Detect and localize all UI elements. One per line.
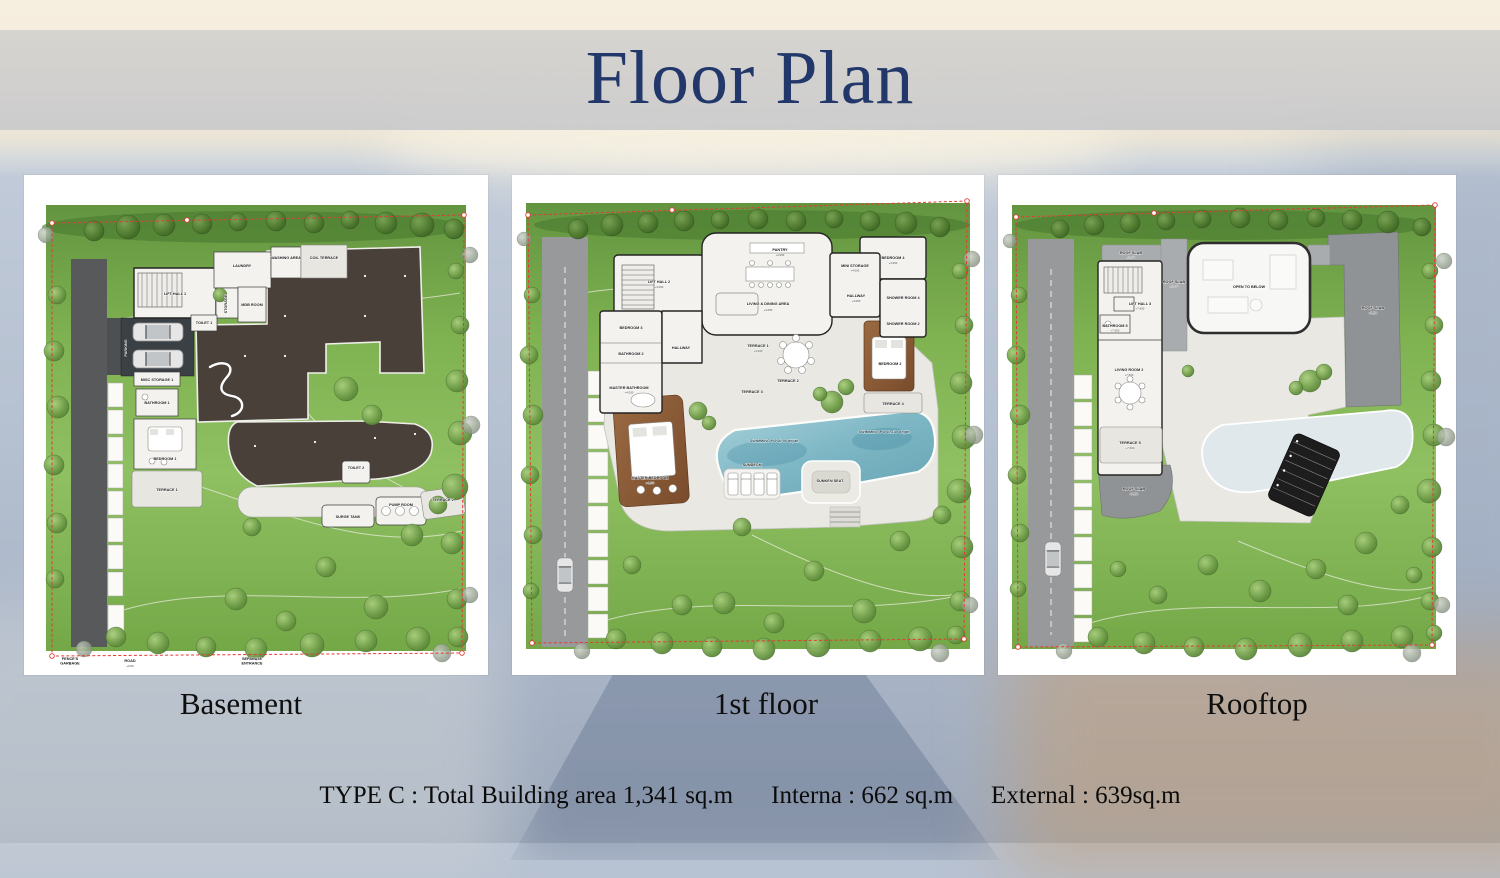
svg-text:LIFT HALL 3: LIFT HALL 3 — [1129, 302, 1151, 306]
svg-text:TERRACE 2: TERRACE 2 — [777, 379, 799, 383]
svg-text:SURGE TANK: SURGE TANK — [336, 515, 361, 519]
svg-text:MASTER BEDROOM: MASTER BEDROOM — [632, 476, 669, 480]
svg-text:ROOF SLAB: ROOF SLAB — [1362, 306, 1385, 310]
caption-basement: Basement — [180, 686, 302, 722]
svg-text:+4.050: +4.050 — [646, 481, 655, 485]
first-floor-panel: LIFT HALL 2 +4.050 PANTRY +4.050 MINI ST… — [512, 175, 984, 675]
caption-rooftop: Rooftop — [1206, 686, 1308, 722]
footer-internal-area: Interna : 662 sq.m — [771, 782, 953, 810]
svg-text:BEDROOM 1: BEDROOM 1 — [154, 457, 177, 461]
footer-type-area: TYPE C : Total Building area 1,341 sq.m — [319, 782, 733, 810]
svg-text:TERRACE 1: TERRACE 1 — [156, 488, 178, 492]
svg-text:+7.550: +7.550 — [1170, 285, 1179, 289]
svg-text:BATHROOM 2: BATHROOM 2 — [618, 352, 643, 356]
svg-text:TOILET 1: TOILET 1 — [196, 321, 213, 325]
svg-text:ROOF SLAB: ROOF SLAB — [1120, 251, 1143, 255]
svg-text:+4.050: +4.050 — [655, 285, 664, 289]
building-area-summary: TYPE C : Total Building area 1,341 sq.m … — [0, 782, 1500, 810]
svg-text:+4.050: +4.050 — [852, 299, 861, 303]
svg-text:+7.550: +7.550 — [1130, 492, 1139, 496]
svg-text:BEDROOM 4: BEDROOM 4 — [882, 256, 906, 260]
svg-text:SUNKEN SEAT: SUNKEN SEAT — [817, 479, 845, 483]
svg-text:BATHROOM 1: BATHROOM 1 — [144, 401, 169, 405]
svg-text:+7.600: +7.600 — [1125, 373, 1134, 377]
svg-text:PUMP ROOM: PUMP ROOM — [389, 503, 413, 507]
page-title: Floor Plan — [0, 28, 1500, 128]
svg-text:BEDROOM 2: BEDROOM 2 — [879, 362, 902, 366]
svg-text:+4.050: +4.050 — [625, 391, 634, 395]
rooftop-plan: ROOF SLAB +7.550 ROOF SLAB +7.550 ROOF S… — [998, 175, 1456, 675]
car — [557, 558, 573, 592]
svg-text:SUNDECK: SUNDECK — [743, 463, 762, 467]
footer-external-area: External : 639sq.m — [991, 782, 1181, 810]
svg-text:SEPARATE: SEPARATE — [242, 657, 263, 661]
svg-text:SHOWER ROOM 2: SHOWER ROOM 2 — [886, 322, 919, 326]
basement-floor-plan: LAUNDRY WASHING AREA COIL TERRACE LIFT H… — [24, 175, 488, 675]
svg-text:COIL TERRACE: COIL TERRACE — [310, 256, 339, 260]
basement-panel: LAUNDRY WASHING AREA COIL TERRACE LIFT H… — [24, 175, 488, 675]
svg-text:WASHING AREA: WASHING AREA — [271, 256, 301, 260]
svg-text:MASTER BATHROOM: MASTER BATHROOM — [609, 386, 648, 390]
first-floor-plan: LIFT HALL 2 +4.050 PANTRY +4.050 MINI ST… — [512, 175, 984, 675]
svg-text:GARBAGE: GARBAGE — [60, 662, 80, 666]
car — [133, 350, 183, 368]
svg-text:TERRACE 2: TERRACE 2 — [432, 498, 454, 502]
svg-text:STORAGE: STORAGE — [224, 294, 228, 313]
svg-text:ROAD: ROAD — [124, 659, 135, 663]
first-building — [600, 233, 938, 531]
svg-text:BEDROOM 3: BEDROOM 3 — [620, 326, 643, 330]
svg-text:ROOF SLAB: ROOF SLAB — [1123, 487, 1146, 491]
caption-first-floor: 1st floor — [714, 686, 818, 722]
svg-text:+7.600: +7.600 — [1111, 329, 1120, 333]
car — [1045, 542, 1061, 576]
svg-text:+7.550: +7.550 — [1369, 311, 1378, 315]
svg-text:LAUNDRY: LAUNDRY — [233, 264, 252, 268]
car — [133, 323, 183, 341]
svg-text:MISC STORAGE 1: MISC STORAGE 1 — [141, 378, 173, 382]
svg-text:+4.050: +4.050 — [889, 261, 898, 265]
svg-text:HALLWAY: HALLWAY — [847, 294, 866, 298]
svg-text:SWIMMING POOL 140 depth: SWIMMING POOL 140 depth — [859, 430, 910, 434]
svg-text:BATHROOM 5: BATHROOM 5 — [1102, 324, 1127, 328]
svg-text:TERRACE 5: TERRACE 5 — [1119, 441, 1141, 445]
svg-text:LIFT HALL 1: LIFT HALL 1 — [164, 292, 186, 296]
svg-text:TERRACE 4: TERRACE 4 — [882, 402, 904, 406]
svg-text:+7.550: +7.550 — [1127, 256, 1136, 260]
rooftop-panel: ROOF SLAB +7.550 ROOF SLAB +7.550 ROOF S… — [998, 175, 1456, 675]
svg-text:MDB ROOM: MDB ROOM — [241, 303, 263, 307]
svg-text:+4.050: +4.050 — [764, 308, 773, 312]
svg-text:+0.00: +0.00 — [126, 664, 134, 668]
svg-text:SWIMMING POOL 90 depth: SWIMMING POOL 90 depth — [750, 439, 799, 443]
svg-text:LIVING & DINING AREA: LIVING & DINING AREA — [747, 302, 790, 306]
svg-text:PARKING: PARKING — [124, 339, 128, 356]
svg-text:LIVING ROOM 2: LIVING ROOM 2 — [1115, 368, 1144, 372]
svg-text:MINI STORAGE: MINI STORAGE — [841, 264, 869, 268]
svg-text:FENCE'S: FENCE'S — [62, 657, 79, 661]
svg-text:PANTRY: PANTRY — [772, 248, 788, 252]
svg-text:TERRACE 3: TERRACE 3 — [741, 390, 763, 394]
svg-text:TERRACE 1: TERRACE 1 — [747, 344, 769, 348]
svg-text:ROOF SLAB: ROOF SLAB — [1163, 280, 1186, 284]
svg-text:ENTRANCE: ENTRANCE — [241, 662, 263, 666]
svg-text:HALLWAY: HALLWAY — [672, 346, 691, 350]
svg-text:+4.050: +4.050 — [776, 253, 785, 257]
svg-text:+7.600: +7.600 — [1126, 446, 1135, 450]
svg-text:+4.000: +4.000 — [754, 349, 763, 353]
svg-text:TOILET 2: TOILET 2 — [348, 466, 365, 470]
svg-text:LIFT HALL 2: LIFT HALL 2 — [648, 280, 670, 284]
svg-text:+7.600: +7.600 — [1136, 307, 1145, 311]
svg-text:SHOWER ROOM 4: SHOWER ROOM 4 — [886, 296, 920, 300]
svg-text:OPEN TO BELOW: OPEN TO BELOW — [1233, 285, 1266, 289]
svg-text:+4.050: +4.050 — [851, 269, 860, 273]
